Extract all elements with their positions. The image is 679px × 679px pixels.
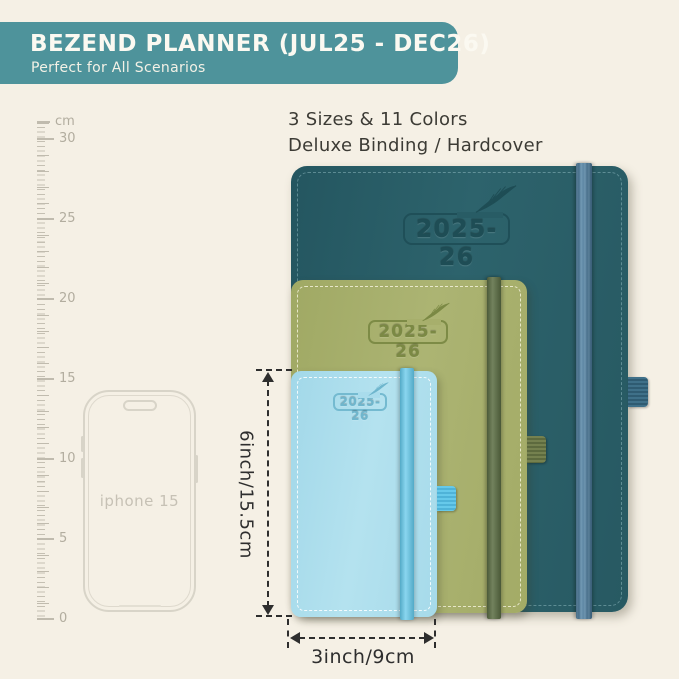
feather-icon xyxy=(368,382,389,396)
planner-logo: 2025-26 xyxy=(403,184,515,245)
logo-year: 2025-26 xyxy=(335,395,385,423)
height-dimension-label: 6inch/15.5cm xyxy=(236,395,257,595)
width-dimension-line xyxy=(290,631,434,645)
logo-frame: 2025-26 xyxy=(403,213,510,245)
elastic-band xyxy=(487,277,501,619)
headline: 3 Sizes & 11 Colors Deluxe Binding / Har… xyxy=(288,107,543,159)
phone-bottom-line xyxy=(119,605,161,607)
height-dimension-line xyxy=(261,372,275,615)
dashed-line xyxy=(299,637,425,639)
extension-line xyxy=(256,615,292,617)
dashed-line xyxy=(267,380,269,607)
ruler-tick xyxy=(37,298,54,300)
planner-logo: 2025-26 xyxy=(333,382,393,412)
width-dimension-label: 3inch/9cm xyxy=(290,646,436,668)
ruler-tick xyxy=(37,138,54,140)
ruler-tick xyxy=(37,458,54,460)
pen-loop xyxy=(437,486,456,511)
pen-loop xyxy=(527,436,546,463)
feather-icon xyxy=(475,184,517,214)
headline-line2: Deluxe Binding / Hardcover xyxy=(288,133,543,159)
ruler-medium-ticks xyxy=(37,123,49,620)
phone-label: iphone 15 xyxy=(85,492,194,510)
ruler-tick xyxy=(37,618,54,620)
planner-logo: 2025-26 xyxy=(368,302,460,344)
banner-title: BEZEND PLANNER (JUL25 - DEC26) xyxy=(30,31,490,57)
banner-subtitle: Perfect for All Scenarios xyxy=(31,60,206,76)
ruler-tick xyxy=(37,378,54,380)
logo-year: 2025-26 xyxy=(370,322,446,362)
elastic-band xyxy=(576,163,592,619)
planner-small: 2025-26 xyxy=(291,371,437,617)
dynamic-island xyxy=(123,400,157,411)
product-image: BEZEND PLANNER (JUL25 - DEC26) Perfect f… xyxy=(0,0,679,679)
headline-line1: 3 Sizes & 11 Colors xyxy=(288,107,543,133)
arrow-right-icon xyxy=(424,632,434,644)
iphone-outline: iphone 15 xyxy=(83,390,196,612)
pen-loop xyxy=(628,377,648,407)
extension-line xyxy=(256,369,292,371)
extension-line xyxy=(434,619,436,648)
phone-side-button xyxy=(81,436,84,452)
logo-frame: 2025-26 xyxy=(368,320,448,344)
elastic-band xyxy=(400,368,414,620)
ruler-tick xyxy=(37,121,50,123)
feather-icon xyxy=(422,302,450,322)
header-banner: BEZEND PLANNER (JUL25 - DEC26) Perfect f… xyxy=(0,22,458,84)
ruler-tick xyxy=(37,218,54,220)
phone-side-button xyxy=(81,458,84,478)
ruler-tick xyxy=(37,538,54,540)
logo-year: 2025-26 xyxy=(405,215,508,271)
extension-line xyxy=(287,619,289,648)
arrow-down-icon xyxy=(262,605,274,615)
phone-side-button xyxy=(195,455,198,483)
